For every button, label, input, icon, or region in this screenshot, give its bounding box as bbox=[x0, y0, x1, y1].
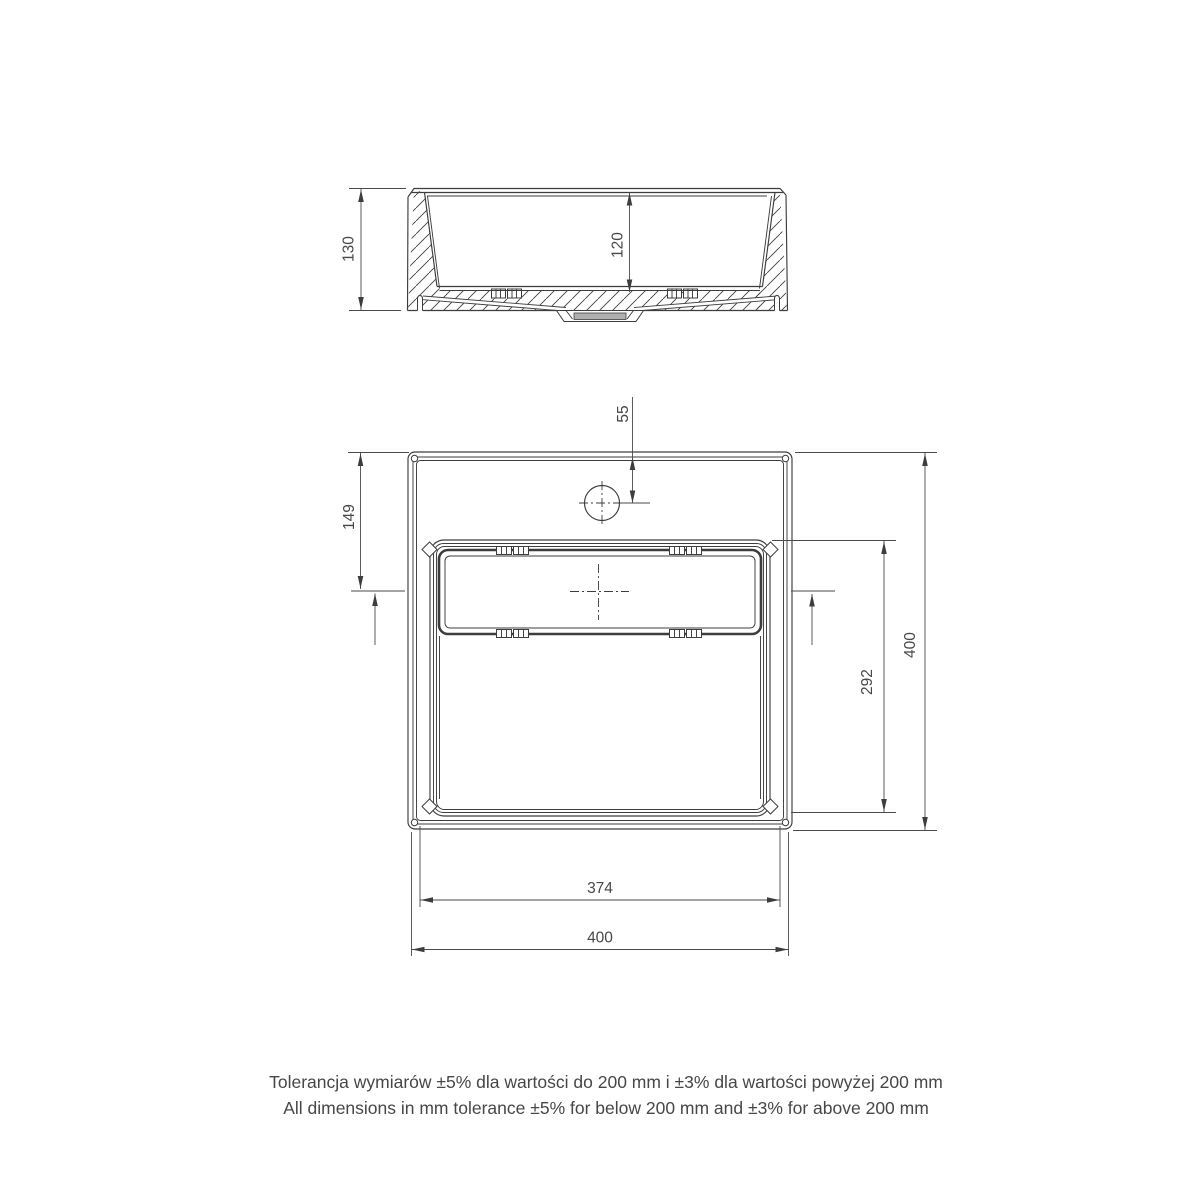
plan-outline bbox=[408, 452, 792, 829]
section-view: 130 120 bbox=[340, 189, 787, 322]
dimension-faucet-offset: 55 bbox=[615, 397, 650, 503]
dimension-edge-to-drain: 149 bbox=[341, 453, 409, 592]
dimension-basin-depth: 120 bbox=[609, 193, 632, 293]
faucet-hole bbox=[579, 481, 627, 526]
drain-outlet bbox=[557, 311, 644, 322]
drain-centerlines bbox=[570, 564, 629, 620]
plan-view: 55 149 292 bbox=[341, 397, 937, 956]
dim-label-400-bottom: 400 bbox=[587, 930, 613, 947]
section-hatching bbox=[408, 190, 787, 311]
basin-floor-rect bbox=[439, 547, 761, 638]
dimension-overall-depth: 400 bbox=[793, 453, 937, 831]
dim-label-55: 55 bbox=[615, 405, 632, 422]
dim-label-120: 120 bbox=[609, 232, 626, 258]
dim-label-130: 130 bbox=[340, 236, 357, 262]
tolerance-text-en: All dimensions in mm tolerance ±5% for b… bbox=[283, 1098, 929, 1118]
basin-opening bbox=[422, 540, 778, 816]
drain-axis-pointer-left bbox=[372, 594, 378, 646]
dimension-basin-width: 374 bbox=[420, 826, 780, 907]
dim-label-374: 374 bbox=[587, 880, 613, 897]
technical-drawing-page: 130 120 bbox=[0, 0, 1200, 1200]
dim-label-400-right: 400 bbox=[902, 632, 919, 658]
drain-opening-fill bbox=[574, 313, 626, 320]
drain-axis-pointer-right bbox=[791, 591, 835, 645]
dim-label-149: 149 bbox=[341, 504, 358, 530]
dim-label-292: 292 bbox=[859, 669, 876, 695]
dimension-basin-length: 292 bbox=[772, 541, 896, 813]
tolerance-note: Tolerancja wymiarów ±5% dla wartości do … bbox=[269, 1072, 943, 1118]
tolerance-text-pl: Tolerancja wymiarów ±5% dla wartości do … bbox=[269, 1072, 943, 1092]
sink-technical-drawing: 130 120 bbox=[0, 0, 1200, 1200]
basin-floor-clips bbox=[497, 547, 702, 638]
dimension-overall-height: 130 bbox=[340, 189, 406, 311]
